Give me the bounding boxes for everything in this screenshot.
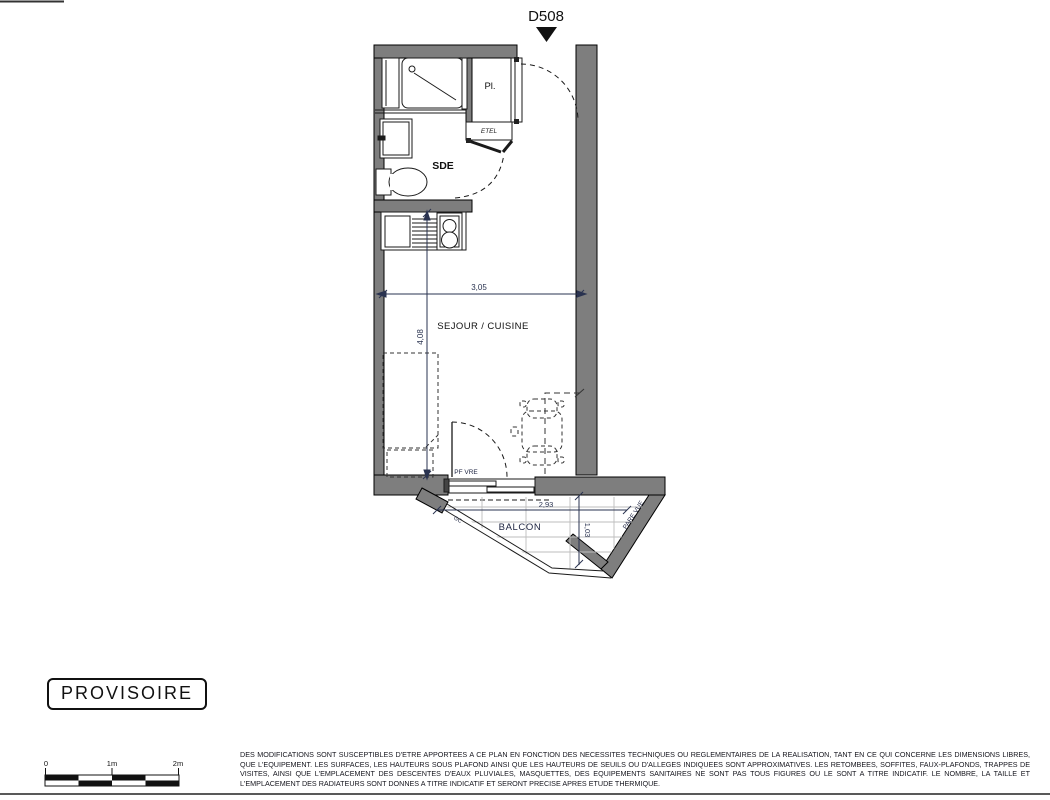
living-label: SEJOUR / CUISINE (437, 321, 528, 332)
balcony-screen-inner (566, 534, 608, 569)
balcony-label: BALCON (499, 522, 542, 533)
provisoire-stamp: PROVISOIRE (47, 678, 207, 710)
railing-outer (443, 509, 611, 578)
dim-balcony-width: 2,93 (539, 500, 554, 509)
table-corner-mark-3 (520, 457, 526, 463)
burner-small-icon (443, 220, 456, 233)
shower-tray (402, 58, 463, 108)
entrance-hinge-bottom (514, 119, 519, 124)
etel-door-leaf (503, 141, 512, 152)
bathroom-door-swing (455, 154, 504, 198)
scale-seg (146, 781, 180, 787)
entrance-door-swing (521, 64, 578, 121)
walls (374, 45, 665, 578)
bathroom-fixtures (375, 58, 467, 196)
burner-large-icon (442, 232, 458, 248)
scale-label-1m: 1m (107, 759, 117, 768)
wall-bathroom-bottom (374, 200, 472, 212)
scale-label-2m: 2m (173, 759, 183, 768)
bathroom-door-hinge (466, 138, 471, 143)
scale-seg (45, 775, 79, 781)
scale-seg (79, 781, 113, 787)
closet-label: Pl. (484, 81, 495, 92)
table-corner-mark-1 (520, 401, 526, 407)
bathroom-cabinet-tall (382, 58, 399, 108)
window-end-block (444, 479, 449, 492)
shower-drain-icon (409, 66, 415, 72)
toilet-join (390, 174, 396, 190)
chair-bottom (527, 446, 557, 465)
wall-bottom-right (535, 477, 665, 495)
wall-bottom-left (374, 475, 448, 495)
entrance-door-leaf (515, 58, 522, 122)
french-window-label: PF VRE (454, 469, 478, 476)
scale-label-0: 0 (44, 759, 48, 768)
table-corner-mark-4 (558, 457, 564, 463)
entrance-arrow-icon (536, 27, 557, 42)
balcony-wall-right-diagonal (601, 495, 665, 578)
bed-fold-corner (426, 435, 438, 447)
dim-living-length: 4,08 (416, 329, 425, 345)
guardrail-label: GC (452, 516, 462, 525)
bathroom-door-leaf (469, 141, 501, 152)
bed (383, 353, 438, 448)
wall-top (374, 45, 517, 58)
vanity-inner (383, 122, 409, 155)
wall-right (576, 45, 597, 475)
disclaimer-text: DES MODIFICATIONS SONT SUSCEPTIBLES D'ET… (240, 750, 1030, 789)
kitchen (381, 212, 466, 250)
table-corner-mark-2 (558, 401, 564, 407)
partition-shower-closet (462, 58, 467, 109)
scale-bar: 0 1m 2m (44, 759, 183, 786)
dim-balcony-depth: 1,03 (583, 523, 592, 538)
furniture (383, 353, 580, 477)
balcony-railing (443, 504, 611, 578)
window-panel-left (449, 481, 496, 486)
kitchen-cabinet (385, 216, 410, 247)
french-window (444, 479, 550, 500)
vanity-handle (378, 136, 385, 140)
bathroom-label: SDE (432, 160, 454, 172)
etel-label: ETEL (481, 128, 498, 135)
dim-living-width: 3,05 (471, 283, 487, 292)
entrance-hinge-top (514, 57, 519, 62)
window-panel-right (487, 487, 534, 492)
scale-seg (112, 775, 146, 781)
chair-top (527, 399, 557, 418)
chair-arm-mark (511, 427, 518, 436)
railing-inner (447, 504, 604, 571)
floorplan-page: { "header": { "unit_label": "D508" }, "p… (0, 0, 1050, 800)
unit-label: D508 (528, 8, 564, 25)
wall-closet-right (511, 58, 515, 122)
